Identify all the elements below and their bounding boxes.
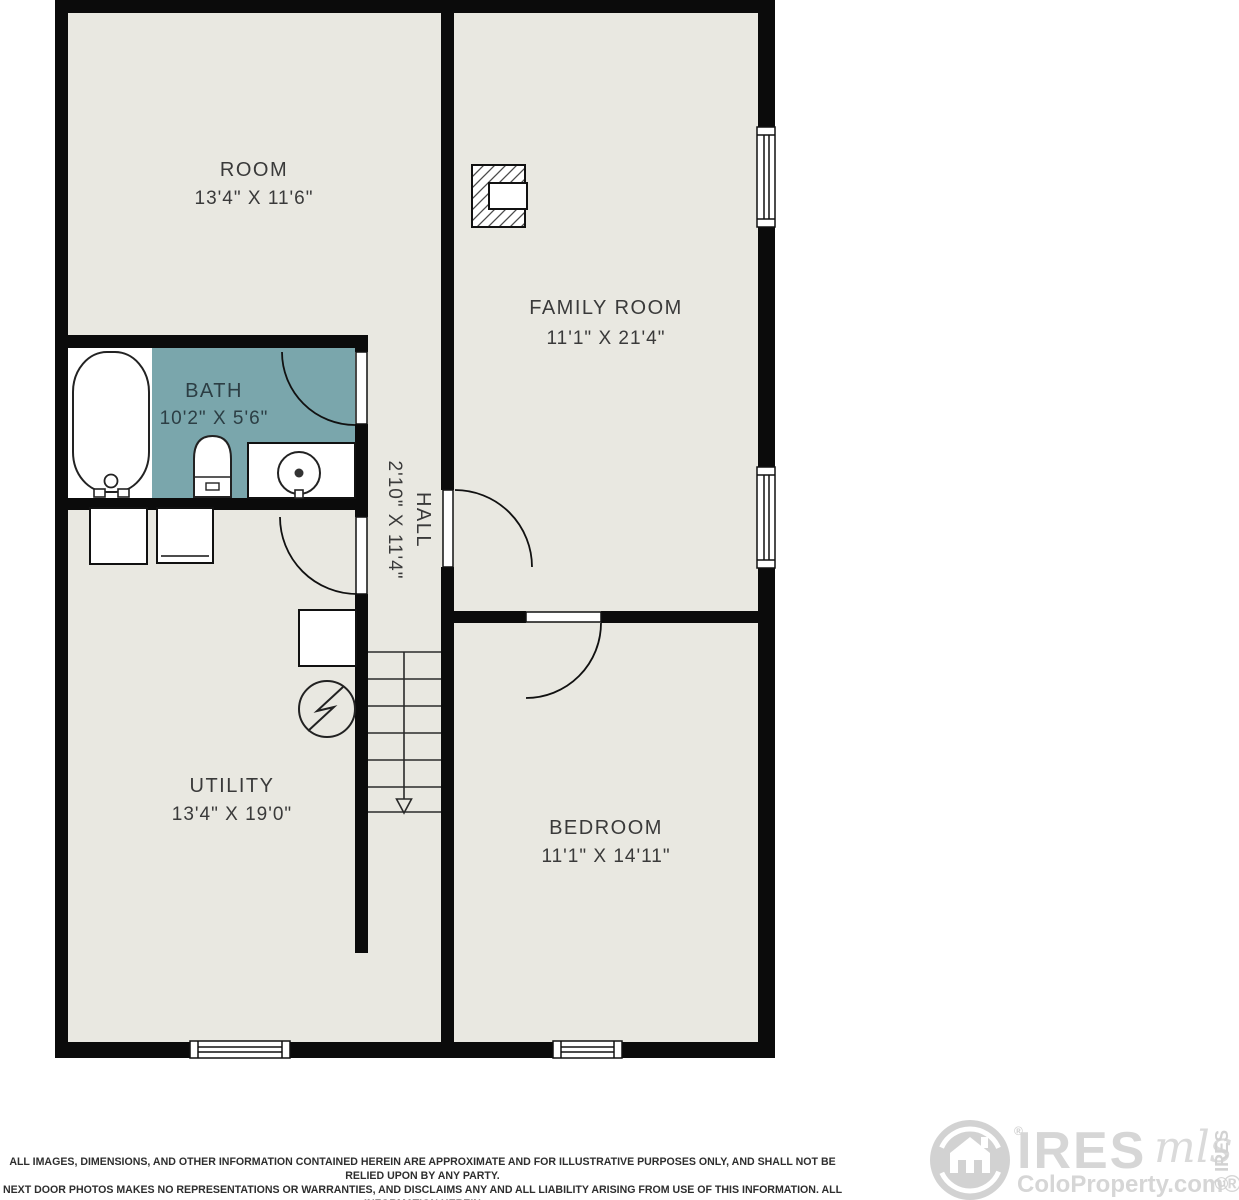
family-room-label: FAMILY ROOM: [529, 297, 683, 319]
room-dims: 13'4" X 11'6": [195, 188, 314, 209]
disclaimer: ALL IMAGES, DIMENSIONS, AND OTHER INFORM…: [0, 1155, 845, 1200]
fireplace-icon: [472, 165, 527, 227]
wall-bedroom-top-right: [601, 611, 775, 623]
copyright-vertical: © IRES: [1212, 1130, 1232, 1190]
washer-icon: [90, 508, 147, 564]
coloproperty-wordmark: ColoProperty.com®: [1017, 1171, 1239, 1198]
floorplan-drawing: ROOM 13'4" X 11'6" FAMILY ROOM 11'1" X 2…: [0, 0, 1239, 1060]
window-icon: [190, 1041, 290, 1058]
house-badge-icon: [930, 1120, 1010, 1200]
bedroom-label: BEDROOM: [549, 817, 663, 839]
wall-center-lower: [441, 567, 454, 1042]
hall-label: HALL: [412, 492, 434, 548]
window-icon: [553, 1041, 622, 1058]
wall-bedroom-top-left: [441, 611, 526, 623]
window-icon: [757, 127, 775, 227]
bedroom-dims: 11'1" X 14'11": [541, 846, 670, 867]
wall-center-upper: [441, 0, 454, 490]
bath-label: BATH: [185, 380, 243, 402]
wall-hall-left-stub: [355, 335, 368, 352]
window-icon: [757, 467, 775, 568]
wall-bath-top: [55, 335, 368, 348]
utility-dims: 13'4" X 19'0": [172, 804, 292, 825]
bath-dims: 10'2" X 5'6": [160, 408, 269, 429]
hall-dims: 2'10" X 11'4": [384, 461, 405, 580]
sink-vanity-icon: [248, 443, 355, 498]
family-room-dims: 11'1" X 21'4": [547, 328, 666, 349]
wall-top: [55, 0, 775, 13]
room-label: ROOM: [220, 159, 288, 181]
toilet-icon: [194, 436, 231, 497]
utility-label: UTILITY: [190, 775, 275, 797]
bathtub-icon: [73, 352, 149, 497]
wall-bottom: [55, 1042, 775, 1058]
disclaimer-line: ALL IMAGES, DIMENSIONS, AND OTHER INFORM…: [0, 1155, 845, 1183]
ires-logo: ® IRES mls ColoProperty.com® © IRES: [920, 1115, 1239, 1200]
floorplan-page: ROOM 13'4" X 11'6" FAMILY ROOM 11'1" X 2…: [0, 0, 1239, 1200]
dryer-icon: [157, 508, 213, 563]
wall-left: [55, 0, 68, 1058]
furnace-icon: [299, 610, 356, 666]
disclaimer-line: NEXT DOOR PHOTOS MAKES NO REPRESENTATION…: [0, 1183, 845, 1200]
